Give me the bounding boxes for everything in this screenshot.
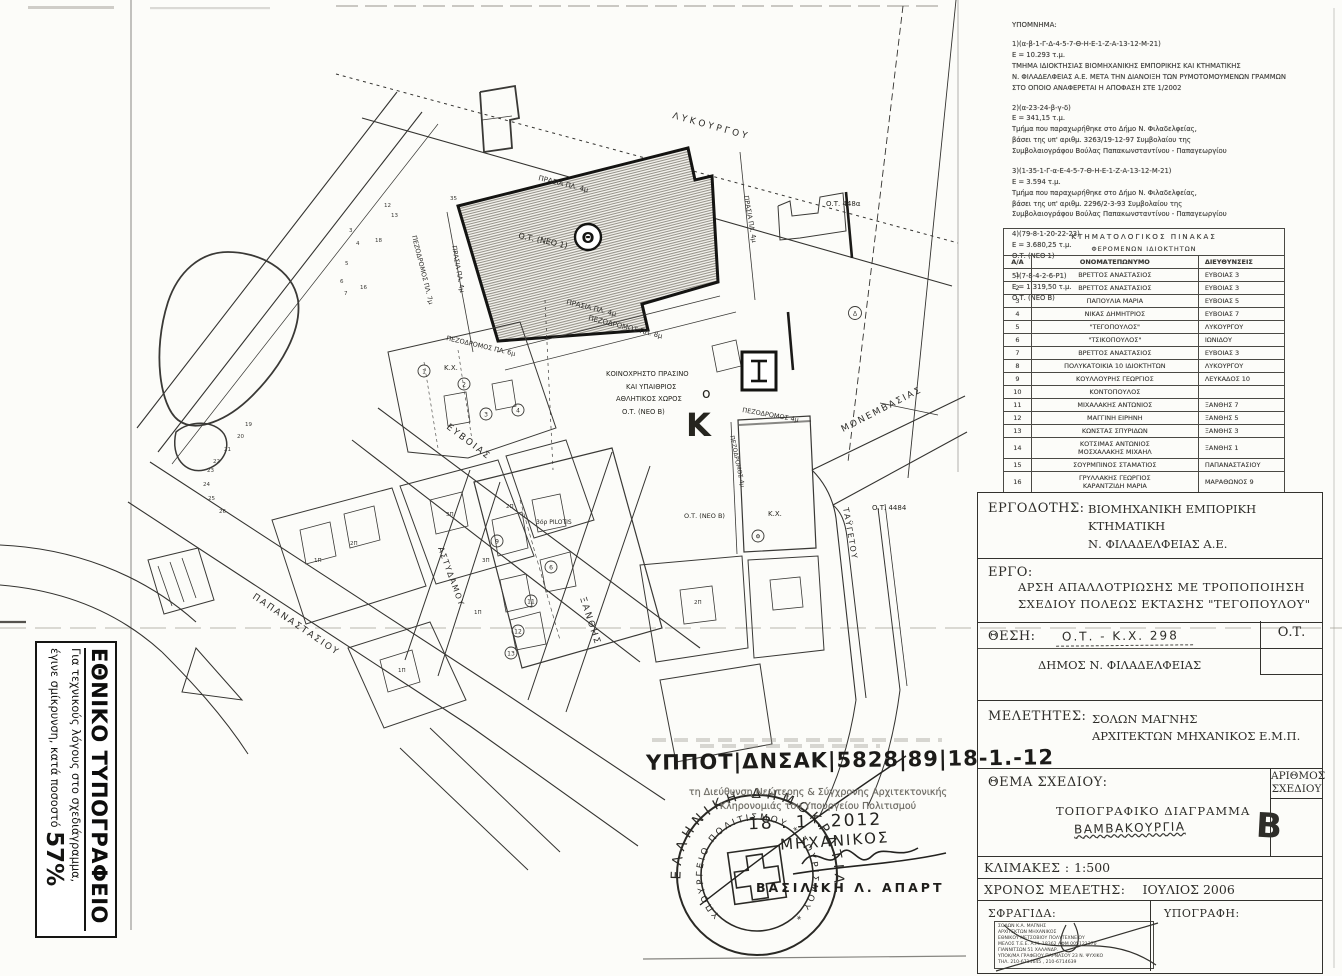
table-row: 12ΜΑΓΓΙΝΗ ΕΙΡΗΝΗΞΑΝΘΗΣ 5 <box>1004 412 1285 425</box>
street-label-prasia-left: ΠΡΑΣΙΑ ΠΛ. 4μ <box>450 245 466 293</box>
project-value: ΑΡΣΗ ΑΠΑΛΛΟΤΡΙΩΣΗΣ ΜΕ ΤΡΟΠΟΠΟΙΗΣΗ ΣΧΕΔΙΟ… <box>1018 579 1311 614</box>
project-label: ΕΡΓΟ: <box>982 561 1033 580</box>
employer-value: ΒΙΟΜΗΧΑΝΙΚΗ ΕΜΠΟΡΙΚΗ ΚΤΗΜΑΤΙΚΗ Ν. ΦΙΛΑΔΕ… <box>1088 501 1322 553</box>
label-ot-448a: Ο.Τ. 448α <box>826 200 861 208</box>
label-ot-4484: Ο.Τ. 4484 <box>872 504 907 512</box>
cadastral-table: ΚΤΗΜΑΤΟΛΟΓΙΚΟΣ ΠΙΝΑΚΑΣ ΦΕΡΟΜΕΝΩΝ ΙΔΙΟΚΤΗ… <box>1003 228 1285 493</box>
svg-text:4: 4 <box>356 241 360 247</box>
label-green-3: ΑΘΛΗΤΙΚΟΣ ΧΩΡΟΣ <box>616 395 682 403</box>
svg-text:20: 20 <box>237 434 244 440</box>
svg-text:26: 26 <box>219 509 226 515</box>
drawing-number-cell <box>1270 799 1322 857</box>
svg-text:22: 22 <box>213 459 220 465</box>
hatched-block-theta: Θ <box>458 148 718 341</box>
location-row: ΘΕΣΗ: Ο.Τ. - Κ.Χ. 298 Ο.Τ. <box>978 623 1322 649</box>
signature-squiggle <box>793 848 946 874</box>
table-row: 3ΠΑΠΟΥΛΙΑ ΜΑΡΙΑΕΥΒΟΙΑΣ 5 <box>1004 295 1285 308</box>
ot-box: Ο.Τ. <box>1260 621 1322 649</box>
table-row: 4ΝΙΚΑΣ ΔΗΜΗΤΡΙΟΣΕΥΒΟΙΑΣ 7 <box>1004 308 1285 321</box>
svg-text:24: 24 <box>203 482 210 488</box>
signature-label: ΥΠΟΓΡΑΦΗ: <box>1158 903 1240 920</box>
municipality-value: ΔΗΜΟΣ Ν. ΦΙΛΑΔΕΛΦΕΙΑΣ <box>1038 657 1201 674</box>
label-kx-left: Κ.Χ. <box>444 364 458 372</box>
location-label: ΘΕΣΗ: <box>982 625 1036 644</box>
svg-text:13: 13 <box>391 213 398 219</box>
reduction-percent: 57% <box>41 831 67 886</box>
label-pilotis: 3όρ PILOTIS <box>536 519 572 526</box>
street-label-pezodromos-4v: ΠΕΖΟΔΡΟΜΟΣ 4μ <box>728 435 746 488</box>
subject-handwritten: ΒΑΜΒΑΚΟΥΡΓΙΑ <box>1074 820 1186 837</box>
svg-text:2Π: 2Π <box>694 600 702 606</box>
table-header-row: Α/Α ΟΝΟΜΑΤΕΠΩΝΥΜΟ ΔΙΕΥΘΥΝΣΕΙΣ <box>1004 256 1285 269</box>
street-labels: ΛΥΚΟΥΡΓΟΥ ΠΑΠΑΝΑΣΤΑΣΙΟΥ ΕΥΒΟΙΑΣ ΞΑΝΘΗΣ Μ… <box>250 111 924 658</box>
street-label-papanastasiou: ΠΑΠΑΝΑΣΤΑΣΙΟΥ <box>250 592 341 658</box>
label-kx-center: Κ.Χ. <box>768 510 782 518</box>
study-time-label: ΧΡΟΝΟΣ ΜΕΛΕΤΗΣ: <box>978 878 1125 897</box>
street-label-pezodromos-7: ΠΕΖΟΔΡΟΜΟΣ ΠΛ. 7μ <box>410 235 435 306</box>
svg-text:25: 25 <box>208 496 215 502</box>
table-row: 13ΚΩΝΣΤΑΣ ΣΠΥΡΙΔΩΝΞΑΝΘΗΣ 3 <box>1004 425 1285 438</box>
label-green-1: ΚΟΙΝΟΧΡΗΣΤΟ ΠΡΑΣΙΝΟ <box>606 370 689 378</box>
svg-text:6: 6 <box>340 279 344 285</box>
subject-label: ΘΕΜΑ ΣΧΕΔΙΟΥ: <box>982 771 1108 790</box>
svg-text:2Π: 2Π <box>350 541 358 547</box>
table-row: 6"ΤΣΙΚΟΠΟΥΛΟΣ"ΙΩΝΙΔΟΥ <box>1004 334 1285 347</box>
subject-value: ΤΟΠΟΓΡΑΦΙΚΟ ΔΙΑΓΡΑΜΜΑ <box>1056 803 1250 820</box>
study-time-value: ΙΟΥΛΙΟΣ 2006 <box>1143 882 1235 897</box>
table-row: 2ΒΡΕΤΤΟΣ ΑΝΑΣΤΑΣΙΟΣΕΥΒΟΙΑΣ 3 <box>1004 282 1285 295</box>
legend-title: ΥΠΟΜΝΗΜΑ: <box>1012 20 1334 31</box>
street-label-prasia-right: ΠΡΑΣΙΑ ΠΛ. 4μ <box>742 195 758 243</box>
svg-text:7: 7 <box>344 291 348 297</box>
reduction-note-line2: έγινε σμίκρυνση, κατά ποσοστό <box>48 648 61 831</box>
designers-label: ΜΕΛΕΤΗΤΕΣ: <box>982 705 1086 724</box>
table-row: 15ΣΟΥΡΜΠΙΝΟΣ ΣΤΑΜΑΤΙΟΣΠΑΠΑΝΑΣΤΑΣΙΟΥ <box>1004 459 1285 472</box>
table-title: ΚΤΗΜΑΤΟΛΟΓΙΚΟΣ ΠΙΝΑΚΑΣ <box>1004 229 1285 244</box>
legend-item-2: 2)(α-23-24-β-γ-δ) Ε = 341,15 τ.μ. Τμήμα … <box>1012 103 1334 157</box>
svg-text:2: 2 <box>462 382 466 389</box>
table-row: 7ΒΡΕΤΤΟΣ ΑΝΑΣΤΑΣΙΟΣΕΥΒΟΙΑΣ 3 <box>1004 347 1285 360</box>
label-ot-neo-b-2: Ο.Τ. (ΝΕΟ Β) <box>684 512 725 520</box>
svg-text:3Π: 3Π <box>482 558 490 564</box>
label-big-k: Κ <box>686 406 712 444</box>
section-marker-I <box>742 352 776 390</box>
street-label-taygetou: ΤΑΫΓΕΤΟΥ <box>841 506 860 561</box>
svg-text:13: 13 <box>507 651 515 658</box>
svg-text:35: 35 <box>450 196 457 202</box>
scale-row: ΚΛΙΜΑΚΕΣ : 1:500 <box>978 857 1322 879</box>
svg-text:3: 3 <box>484 412 488 419</box>
label-small-o: ο <box>702 386 711 402</box>
svg-text:4: 4 <box>516 408 520 415</box>
label-ot-neo-b: Ο.Τ. (ΝΕΟ Β) <box>622 408 665 416</box>
svg-text:21: 21 <box>224 447 231 453</box>
svg-text:5: 5 <box>345 261 349 267</box>
svg-text:Φ: Φ <box>756 534 761 541</box>
table-row: 16ΓΡΥΛΛΑΚΗΣ ΓΕΩΡΓΙΟΣ ΚΑΡΑΝΤΖΙΔΗ ΜΑΡΙΑΜΑΡ… <box>1004 472 1285 493</box>
street-label-lykourgou: ΛΥΚΟΥΡΓΟΥ <box>671 111 751 142</box>
svg-text:1: 1 <box>422 369 426 376</box>
svg-text:12: 12 <box>384 203 391 209</box>
location-handwritten: Ο.Τ. - Κ.Χ. 298 <box>1056 628 1193 646</box>
svg-text:Δ: Δ <box>853 311 858 318</box>
street-label-xanthis: ΞΑΝΘΗΣ <box>577 596 602 647</box>
circled-markers: 1 2 3 4 9 6 11 12 13 Δ Φ <box>418 307 862 660</box>
employer-row: ΕΡΓΟΔΟΤΗΣ: ΒΙΟΜΗΧΑΝΙΚΗ ΕΜΠΟΡΙΚΗ ΚΤΗΜΑΤΙΚ… <box>978 493 1322 559</box>
table-subtitle: ΦΕΡΟΜΕΝΩΝ ΙΔΙΟΚΤΗΤΩΝ <box>1004 243 1285 256</box>
table-row: 11ΜΙΧΑΛΑΚΗΣ ΑΝΤΩΝΙΟΣΞΑΝΘΗΣ 7 <box>1004 399 1285 412</box>
theta-symbol: Θ <box>582 229 595 247</box>
title-block: ΕΡΓΟΔΟΤΗΣ: ΒΙΟΜΗΧΑΝΙΚΗ ΕΜΠΟΡΙΚΗ ΚΤΗΜΑΤΙΚ… <box>977 492 1323 974</box>
svg-text:1Π: 1Π <box>474 610 482 616</box>
signer-name: ΒΑΣΙΛΙΚΗ Λ. ΑΠΑΡΤ <box>756 880 945 895</box>
employer-label: ΕΡΓΟΔΟΤΗΣ: <box>982 497 1085 516</box>
stamp-signature-row: ΣΦΡΑΓΙΔΑ: ΣΟΛΩΝ Κ.Α. ΜΑΓΝΗΣ ΑΡΧΙΤΕΚΤΩΝ Μ… <box>978 901 1322 971</box>
table-row: 14ΚΟΤΣΙΜΑΣ ΑΝΤΩΝΙΟΣ ΜΟΣΧΑΛΑΚΗΣ ΜΙΧΑΗΛΞΑΝ… <box>1004 438 1285 459</box>
svg-text:3: 3 <box>349 228 353 234</box>
faded-approval-line-1 <box>652 738 942 742</box>
table-row: 5"ΤΕΓΟΠΟΥΛΟΣ"ΛΥΚΟΥΡΓΟΥ <box>1004 321 1285 334</box>
svg-text:1Π: 1Π <box>398 668 406 674</box>
greek-cross-emblem <box>728 846 787 905</box>
reduction-note-line1: Για τεχνικούς λόγους στο σχεδιάγραμμα, <box>69 648 82 882</box>
table-row: 1ΒΡΕΤΤΟΣ ΑΝΑΣΤΑΣΙΟΣΕΥΒΟΙΑΣ 3 <box>1004 269 1285 282</box>
svg-text:18: 18 <box>375 238 382 244</box>
approving-department-text: τη Διεύθυνση Νεώτερης & Σύγχρονης Αρχιτε… <box>668 786 968 814</box>
scanned-topographic-sheet: Θ <box>0 0 1342 976</box>
legend-item-1: 1)(α-β-1-Γ-Δ-4-5-7-Θ-Η-Ε-1-Ζ-Α-13-12-Μ-2… <box>1012 39 1334 93</box>
reduction-notice-box: ΕΘΝΙΚΟ ΤΥΠΟΓΡΑΦΕΙΟ Για τεχνικούς λόγους … <box>35 641 117 938</box>
drawing-number-label: ΑΡΙΘΜΟΣ ΣΧΕΔΙΟΥ <box>1270 769 1322 799</box>
svg-text:2Π: 2Π <box>506 504 514 510</box>
svg-text:23: 23 <box>207 468 214 474</box>
table-row: 9ΚΟΥΛΛΟΥΡΗΣ ΓΕΩΡΓΙΟΣΛΕΥΚΑΔΟΣ 10 <box>1004 373 1285 386</box>
svg-text:19: 19 <box>245 422 252 428</box>
study-time-row: ΧΡΟΝΟΣ ΜΕΛΕΤΗΣ: ΙΟΥΛΙΟΣ 2006 <box>978 879 1322 901</box>
svg-text:9: 9 <box>495 539 499 546</box>
svg-text:1Π: 1Π <box>314 558 322 564</box>
table-row: 10ΚΟΝΤΟΠΟΥΛΟΣ <box>1004 386 1285 399</box>
printing-office-title: ΕΘΝΙΚΟ ΤΥΠΟΓΡΑΦΕΙΟ <box>84 648 111 931</box>
block-outlines <box>148 86 852 762</box>
svg-text:12: 12 <box>514 629 522 636</box>
municipality-row: ΔΗΜΟΣ Ν. ΦΙΛΑΔΕΛΦΕΙΑΣ <box>978 649 1322 701</box>
street-label-pezodromos-4h: ΠΕΖΟΔΡΟΜΟΣ 4μ <box>742 406 800 424</box>
subject-row: ΘΕΜΑ ΣΧΕΔΙΟΥ: ΤΟΠΟΓΡΑΦΙΚΟ ΔΙΑΓΡΑΜΜΑ ΒΑΜΒ… <box>978 769 1322 857</box>
table-row: 8ΠΟΛΥΚΑΤΟΙΚΙΑ 10 ΙΔΙΟΚΤΗΤΩΝΛΥΚΟΥΡΓΟΥ <box>1004 360 1285 373</box>
project-row: ΕΡΓΟ: ΑΡΣΗ ΑΠΑΛΛΟΤΡΙΩΣΗΣ ΜΕ ΤΡΟΠΟΠΟΙΗΣΗ … <box>978 559 1322 623</box>
stamp-cross-scribble <box>988 915 1168 976</box>
designers-value: ΣΟΛΩΝ ΜΑΓΝΗΣ ΑΡΧΙΤΕΚΤΩΝ ΜΗΧΑΝΙΚΟΣ Ε.Μ.Π. <box>1092 711 1300 746</box>
legend-item-3: 3)(1-35-1-Γ-α-Ε-4-5-7-Θ-Η-Ε-1-Ζ-Α-13-12-… <box>1012 166 1334 220</box>
label-green-2: ΚΑΙ ΥΠΑΙΘΡΙΟΣ <box>626 383 676 391</box>
svg-text:16: 16 <box>360 285 367 291</box>
svg-text:11: 11 <box>527 599 535 606</box>
svg-text:6: 6 <box>549 565 553 572</box>
ot-box-empty <box>1260 649 1322 675</box>
scale-value: 1:500 <box>1074 860 1110 875</box>
scale-label: ΚΛΙΜΑΚΕΣ : <box>978 856 1074 875</box>
svg-text:3Π: 3Π <box>446 512 454 518</box>
